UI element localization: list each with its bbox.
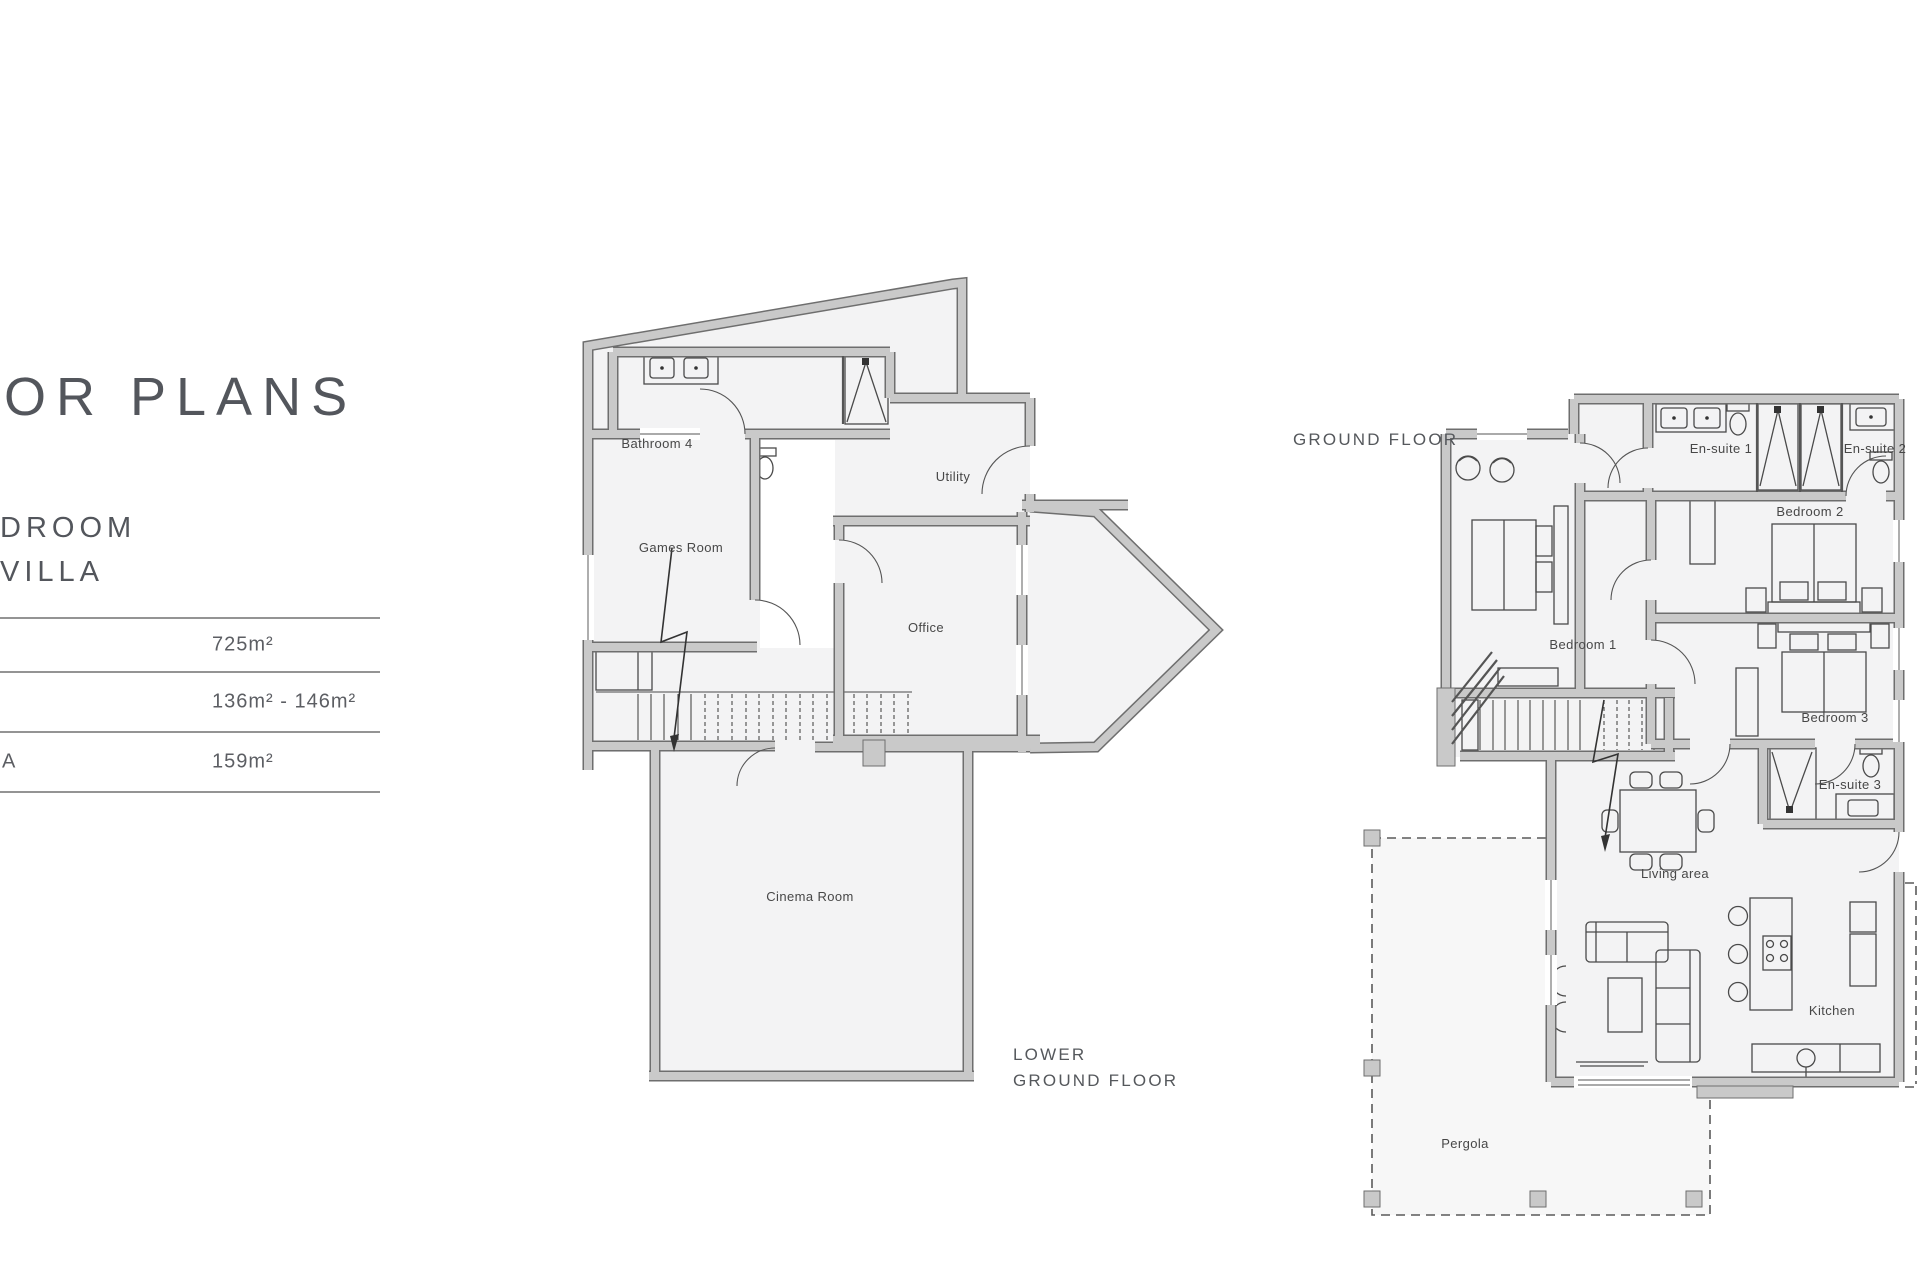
room-fills xyxy=(588,286,1900,1082)
room-label-ensuite1: En-suite 1 xyxy=(1690,441,1753,456)
lower-ground-label-line2: GROUND FLOOR xyxy=(1013,1071,1178,1090)
lower-ground-label-line1: LOWER xyxy=(1013,1045,1086,1064)
room-label-pergola: Pergola xyxy=(1441,1136,1489,1151)
room-label-utility: Utility xyxy=(936,469,971,484)
room-label-cinema: Cinema Room xyxy=(766,889,854,904)
room-label-bedroom2: Bedroom 2 xyxy=(1776,504,1843,519)
floor-plans-page: OR PLANS DROOM VILLA 725m² 136m² - 146m²… xyxy=(0,0,1920,1280)
room-label-ensuite2: En-suite 2 xyxy=(1844,441,1907,456)
room-label-games: Games Room xyxy=(639,540,723,555)
room-label-bedroom1: Bedroom 1 xyxy=(1549,637,1616,652)
room-label-bathroom4: Bathroom 4 xyxy=(621,436,692,451)
floor-plan-drawing: Bathroom 4 Utility Games Room Office Cin… xyxy=(0,0,1920,1280)
room-label-kitchen: Kitchen xyxy=(1809,1003,1855,1018)
room-label-office: Office xyxy=(908,620,944,635)
room-label-living: Living area xyxy=(1641,866,1709,881)
ground-floor-label: GROUND FLOOR xyxy=(1293,430,1458,449)
room-label-bedroom3: Bedroom 3 xyxy=(1801,710,1868,725)
room-label-ensuite3: En-suite 3 xyxy=(1819,777,1882,792)
